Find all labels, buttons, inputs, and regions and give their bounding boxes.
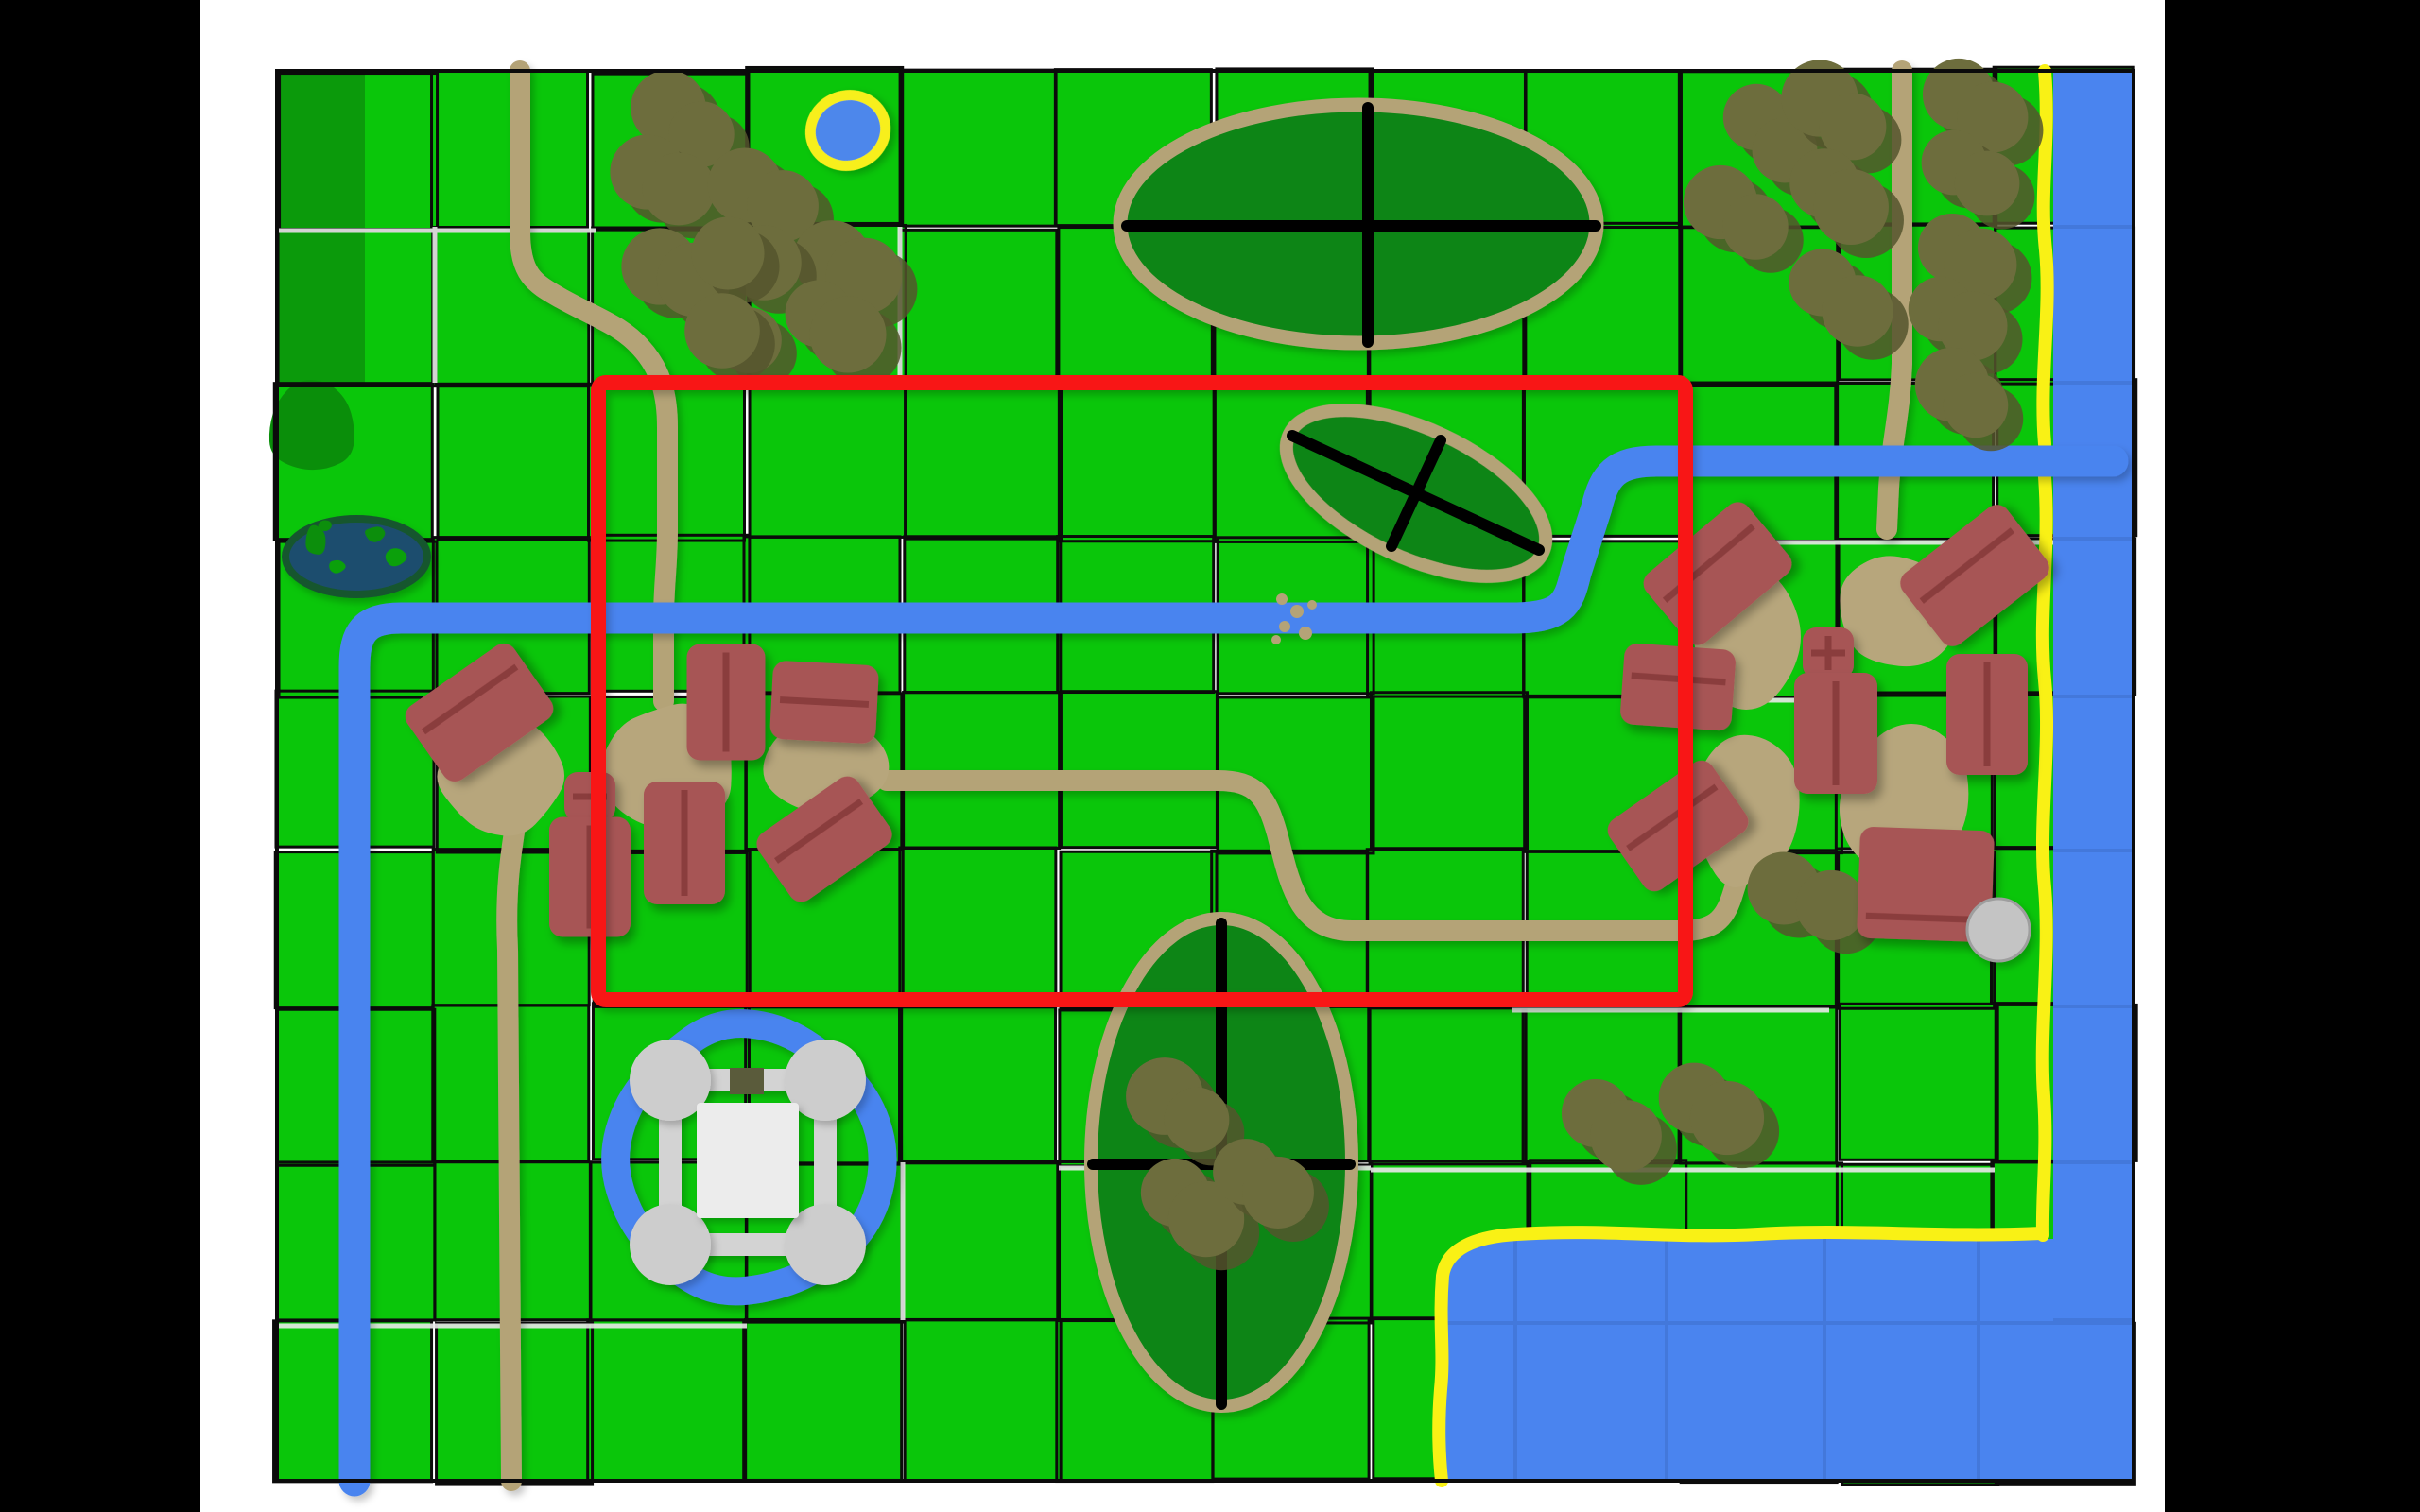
grass-tile <box>900 70 1056 226</box>
grass-tile <box>900 1007 1056 1163</box>
grass-tile <box>588 1320 744 1481</box>
roof-ridge <box>1866 916 1983 919</box>
battle-map-screenshot <box>0 0 2420 1512</box>
ford-stone <box>1276 593 1288 605</box>
tree <box>1813 169 1889 245</box>
gray-boulder <box>1967 899 2030 961</box>
grass-tile <box>904 692 1060 848</box>
tree <box>1242 1157 1314 1228</box>
tree <box>691 216 764 289</box>
tree <box>809 296 886 372</box>
grass-tile <box>901 230 1057 386</box>
west-village-building <box>644 782 725 904</box>
tree <box>1955 151 2020 216</box>
tree <box>1690 1081 1764 1155</box>
grass-tile <box>902 1161 1058 1319</box>
tree <box>643 153 716 226</box>
grass-tile <box>1059 386 1215 541</box>
road-south <box>507 820 516 1481</box>
ford-stone <box>1271 635 1281 644</box>
sea-southeast-bay <box>1444 1239 2134 1481</box>
east-village-building <box>1794 673 1877 794</box>
west-village-building <box>687 644 766 761</box>
grass-tile <box>905 1320 1061 1481</box>
grass-tile <box>438 384 594 540</box>
castle-gate <box>730 1068 764 1094</box>
letterbox-left <box>0 0 200 1512</box>
grass-tile <box>746 1319 902 1480</box>
west-village-building <box>564 772 615 821</box>
tree <box>1944 373 2009 438</box>
tree <box>1822 275 1893 346</box>
ford-stone <box>1307 600 1317 610</box>
dark-green-band <box>277 71 365 385</box>
yellow-shoreline <box>2043 71 2047 444</box>
grass-tile <box>906 383 1062 539</box>
grass-tile <box>1371 693 1527 849</box>
tree <box>684 293 760 369</box>
grass-tile <box>900 848 1056 1004</box>
ford-stone <box>1279 621 1290 632</box>
west-village-building <box>769 661 879 745</box>
east-village-building <box>1803 627 1854 679</box>
grass-tile <box>750 381 906 537</box>
grass-tile <box>1061 692 1217 848</box>
east-village-building <box>1946 654 2028 775</box>
castle-keep <box>697 1103 799 1218</box>
ford-stone <box>1290 605 1304 618</box>
tree <box>1796 870 1866 940</box>
roof-ridge <box>780 700 869 705</box>
grass-tile <box>1840 1004 1996 1160</box>
west-village-building <box>549 817 631 937</box>
tree <box>1590 1100 1662 1172</box>
letterbox-right <box>2165 0 2420 1512</box>
ford-stone <box>1299 627 1312 640</box>
grass-tile <box>1370 1008 1526 1164</box>
yellow-shoreline <box>2043 477 2047 1235</box>
tree <box>1165 1088 1230 1153</box>
tree <box>1722 194 1788 259</box>
